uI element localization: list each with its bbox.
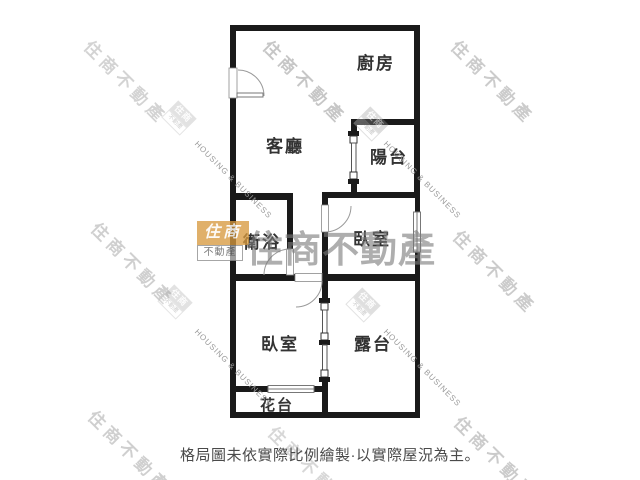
wall-middle-left <box>230 274 295 281</box>
wall-bedroom2-bottom-left <box>230 386 268 392</box>
door-entry <box>229 68 264 98</box>
sliding-cap <box>350 172 357 179</box>
sliding-track <box>323 310 328 333</box>
door-entry-swing-arc <box>238 70 264 96</box>
room-label-kitchen: 廚房 <box>357 53 395 73</box>
wall-bedroom1-top <box>322 192 420 198</box>
sliding-cap <box>321 370 328 377</box>
sliding-cap <box>321 333 328 340</box>
wall-divider-upper <box>322 281 328 298</box>
brand-logo-bottom: 不動產 <box>197 245 243 261</box>
sliding-cap <box>348 131 359 136</box>
sliding-cap <box>350 136 357 143</box>
wall-right-upper <box>414 25 420 195</box>
sliding-door-terrace <box>319 298 330 382</box>
wall-bedroom1-left-upper <box>322 198 328 205</box>
door-bedroom2-opening <box>295 274 322 282</box>
room-label-bedroom-2: 臥室 <box>261 334 299 354</box>
sliding-track <box>352 143 357 172</box>
room-label-terrace: 露台 <box>354 334 392 354</box>
sliding-cap <box>319 377 330 382</box>
window-bedroom2-bottom <box>268 386 314 393</box>
floor-plan-image: 廚房 客廳 陽台 衛浴 臥室 臥室 露台 花台 住商不動產 住商不動產 住商不動… <box>0 0 640 480</box>
watermark-brand-center: 住商不動產 <box>246 219 436 273</box>
brand-logo-watermark: 住商 不動產 <box>197 221 249 261</box>
wall-bathroom-top <box>230 193 293 200</box>
brand-logo-top: 住商 <box>197 221 249 245</box>
wall-middle-right <box>322 274 420 281</box>
door-entry-opening <box>229 68 237 98</box>
room-label-flower-stand: 花台 <box>260 396 294 414</box>
wall-bedroom2-bottom-right <box>314 386 328 392</box>
disclaimer-caption: 格局圖未依實際比例繪製·以實際屋況為主。 <box>160 444 500 465</box>
sliding-cap <box>321 303 328 310</box>
sliding-cap <box>319 298 330 303</box>
sliding-door-balcony <box>348 131 359 184</box>
sliding-cap <box>348 179 359 184</box>
room-label-living-room: 客廳 <box>265 136 304 156</box>
room-label-balcony: 陽台 <box>370 147 408 167</box>
wall-top <box>230 25 420 31</box>
sliding-cap <box>319 340 330 345</box>
door-bedroom2-swing-arc <box>296 281 322 307</box>
door-bedroom2 <box>295 274 322 308</box>
door-entry-leaf <box>237 93 263 97</box>
sliding-track <box>323 345 328 370</box>
